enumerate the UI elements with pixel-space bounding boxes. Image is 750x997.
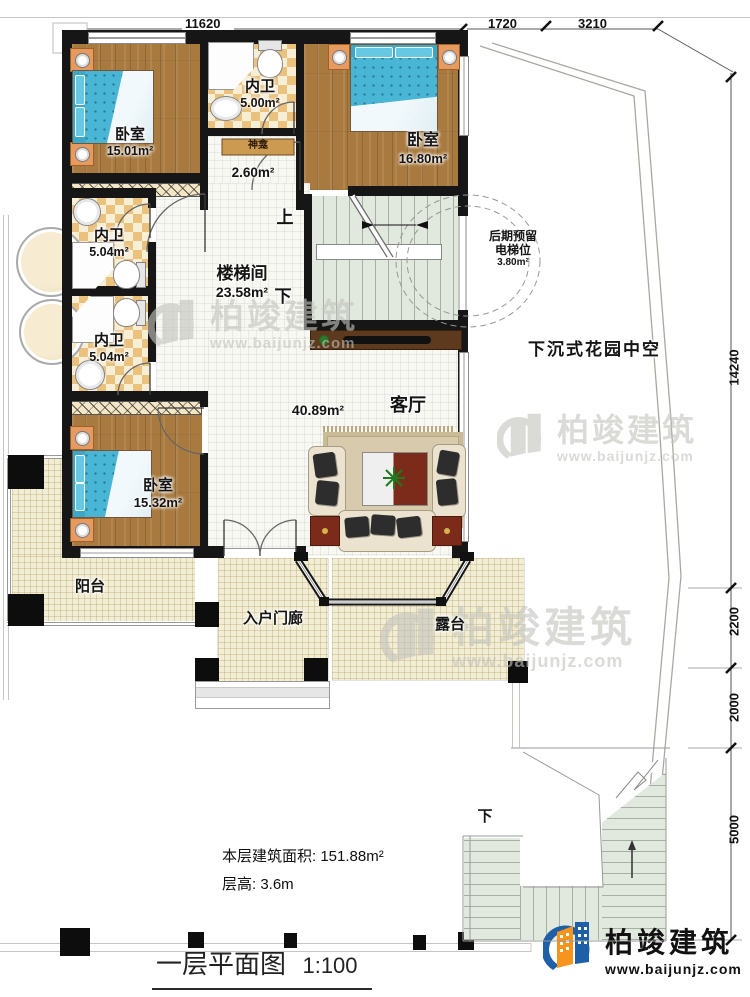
outdoor-stair-down-label: 下 (472, 808, 498, 826)
room-name: 入户门廊 (216, 610, 330, 628)
bay-window (294, 552, 474, 606)
room-label-sunken-garden: 下沉式花园中空 (528, 340, 718, 360)
room-name: 下沉式花园中空 (528, 340, 718, 360)
stair-down-text: 下 (472, 808, 498, 826)
room-label-bedroom-top-left: 卧室 15.01m² (80, 126, 180, 158)
room-name: 卧室 (368, 132, 478, 151)
floor-plan-canvas: 柏竣建筑 www.baijunjz.com 柏竣建筑 www.baijunjz.… (0, 0, 750, 997)
room-name: 楼梯间 (182, 264, 302, 284)
stair-up-label: 上 (272, 208, 298, 228)
room-name: 露台 (418, 616, 482, 634)
room-area: 15.01m² (80, 144, 180, 159)
room-label-entry-porch: 入户门廊 (216, 610, 330, 628)
room-area: 16.80m² (368, 151, 478, 166)
room-name: 内卫 (64, 227, 154, 245)
room-label-bedroom-bottom: 卧室 15.32m² (103, 477, 213, 510)
outdoor-stair-arrow (628, 840, 636, 878)
room-name: 卧室 (103, 477, 213, 495)
label-line2: 电梯位 (460, 243, 566, 257)
room-label-bath-lower: 内卫 5.04m² (64, 332, 154, 364)
room-area: 3.80m² (460, 257, 566, 269)
stair-down-text: 下 (270, 287, 296, 307)
room-name: 内卫 (64, 332, 154, 350)
room-name: 内卫 (212, 78, 308, 96)
room-label-terrace: 露台 (418, 616, 482, 634)
room-area: 5.00m² (212, 96, 308, 111)
room-label-bedroom-top-right: 卧室 16.80m² (368, 132, 478, 166)
room-label-shrine: 神龛 (222, 140, 294, 152)
room-label-shrine-area: 2.60m² (208, 165, 298, 181)
room-name: 卧室 (80, 126, 180, 144)
stair-down-label: 下 (270, 287, 296, 307)
stair-up-text: 上 (272, 208, 298, 228)
room-label-living: 客厅 (372, 395, 444, 416)
room-area: 15.32m² (103, 495, 213, 510)
plant-icon (383, 467, 405, 489)
room-label-living-area: 40.89m² (268, 402, 368, 419)
room-name: 神龛 (222, 140, 294, 152)
room-label-balcony: 阳台 (50, 578, 130, 596)
room-area: 2.60m² (208, 165, 298, 181)
room-label-elevator-reserve: 后期预留 电梯位 3.80m² (460, 229, 566, 269)
room-label-bath-mid: 内卫 5.04m² (64, 227, 154, 259)
room-area: 5.04m² (64, 350, 154, 365)
room-name: 客厅 (372, 395, 444, 416)
room-area: 5.04m² (64, 245, 154, 260)
outdoor-stair-break (616, 760, 658, 798)
stair-break-line (349, 196, 428, 257)
room-label-bath-top: 内卫 5.00m² (212, 78, 308, 110)
room-area: 40.89m² (268, 402, 368, 419)
room-name: 阳台 (50, 578, 130, 596)
label-line1: 后期预留 (460, 229, 566, 243)
